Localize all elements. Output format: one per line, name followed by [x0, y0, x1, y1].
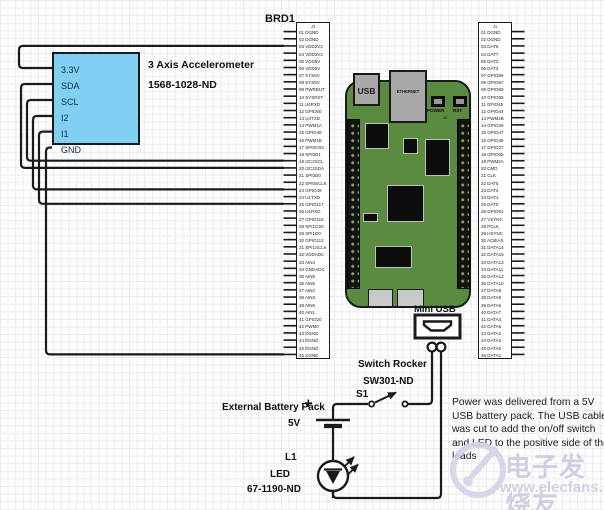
pin-label: 10 GPIO68 [481, 94, 504, 101]
pin-label: 16 PWM1B [299, 137, 322, 144]
pin-label: 41 GPIO20 [299, 316, 322, 323]
pin-label: 37 DATA8 [481, 287, 501, 294]
accelerometer-part-number: 1568-1028-ND [148, 79, 217, 91]
pin-label: 04 VDD3V3 [299, 51, 323, 58]
pin-label: 32 DATA15 [481, 251, 504, 258]
pin-label: 42 DATA5 [481, 323, 501, 330]
pin-label: 40 AIN1 [299, 309, 315, 316]
pin-label: 15 GPIO48 [299, 129, 322, 136]
accelerometer-pin-label: GND [61, 144, 81, 156]
pin-label: 36 DATA10 [481, 280, 504, 287]
pin-label: 25 DAT0 [481, 201, 498, 208]
board-silkscreen-ref: J2 [443, 115, 447, 120]
battery-voltage: 5V [288, 418, 300, 429]
pin-label: 29 SPI1D0 [299, 230, 321, 237]
pin-label: 34 DATA11 [481, 266, 503, 273]
pin-label: 17 SPI0CS0 [299, 144, 324, 151]
pin-label: 45 DGND [299, 345, 319, 352]
pin-label: 28 SPI1CS0 [299, 223, 324, 230]
pin-label: 18 GPIO65 [481, 151, 504, 158]
battery-symbol [316, 420, 350, 426]
led-symbol [318, 457, 358, 491]
pin-label: 39 AIN0 [299, 302, 315, 309]
led-part-number: 67-1190-ND [247, 484, 301, 495]
pin-label: 13 U4TXD [299, 115, 320, 122]
board-chip [365, 123, 389, 149]
pin-label: 08 GPIO67 [481, 79, 504, 86]
pin-label: 04 DAT7 [481, 51, 498, 58]
board-ref-label: BRD1 [265, 13, 295, 25]
pin-label: 03 VDD3V3 [299, 43, 323, 50]
pin-label: 42 PWM0 [299, 323, 319, 330]
pin-label: 21 CLK [481, 172, 496, 179]
accelerometer-pin-label: SDA [61, 80, 80, 92]
pin-label: 35 DATA12 [481, 273, 504, 280]
pin-label: 31 SPI1SCLK [299, 244, 327, 251]
board-chip [375, 246, 412, 268]
pin-label: 43 DGND [299, 330, 319, 337]
pin-label: 20 I2C2SDA [299, 165, 324, 172]
pin-label: 38 DATA9 [481, 294, 501, 301]
reset-button-label: RST [453, 108, 462, 113]
switch-ref: S1 [356, 389, 368, 400]
pin-label: 26 U1RXD [299, 208, 321, 215]
power-button-label: POWER [427, 108, 444, 113]
pin-label: 27 VSYNC [481, 216, 503, 223]
pin-label: 02 DGND [481, 36, 501, 43]
pin-label: 30 ACBIAS [481, 237, 504, 244]
pin-label: 07 GPIO66 [481, 72, 504, 79]
accelerometer-pin-label: SCL [61, 96, 79, 108]
mini-usb-label: Mini USB [414, 304, 456, 315]
pin-label: 15 GPIO47 [481, 129, 504, 136]
pin-label: 12 GPIO44 [481, 108, 504, 115]
pin-label: 10 SYSRST [299, 94, 323, 101]
pin-label: 32 VDDADC [299, 251, 324, 258]
pin-label: 38 AIN3 [299, 294, 315, 301]
pin-label: 29 HSYNC [481, 230, 503, 237]
mini-usb-connector [415, 315, 460, 351]
pin-label: 31 DATA14 [481, 244, 504, 251]
board-chip [425, 139, 450, 176]
pin-label: 06 VDD5V [299, 65, 320, 72]
pin-label: 09 PWRBUT [299, 86, 325, 93]
pin-label: 11 GPIO45 [481, 101, 503, 108]
switch-part-number: SW301-ND [363, 376, 414, 387]
pin-label: 08 SYS5V [299, 79, 320, 86]
pin-label: 41 DATA4 [481, 316, 501, 323]
switch-symbol [369, 393, 408, 407]
pin-label: 46 DGND [299, 352, 319, 359]
pin-label: 16 GPIO46 [481, 137, 504, 144]
pin-label: 06 DAT3 [481, 65, 498, 72]
board-left-pin-strip [347, 119, 360, 289]
pin-label: 23 DAT4 [481, 187, 498, 194]
battery-plus-sign: + [304, 395, 313, 412]
pin-label: 27 GPIO115 [299, 216, 324, 223]
board-chip [363, 213, 378, 222]
led-label: LED [270, 469, 290, 480]
pin-label: 13 PWM2B [481, 115, 504, 122]
pin-label: 28 PCLK [481, 223, 499, 230]
left-pin-header: J3 01 DGND02 DGND03 VDD3V304 VDD3V305 VD… [296, 22, 330, 359]
pin-label: 44 DGND [299, 337, 319, 344]
pin-label: 05 VDD5V [299, 58, 320, 65]
right-pin-header: J1 01 DGND02 DGND03 DAT604 DAT705 DAT206… [478, 22, 512, 359]
pin-label: 24 U1TXD [299, 194, 320, 201]
pin-label: 01 DGND [481, 29, 501, 36]
ethernet-port: ETHERNET [389, 70, 427, 123]
accelerometer-pin-label: I1 [61, 128, 69, 140]
pin-label: 40 DATA7 [481, 309, 501, 316]
pin-label: 12 GPIO60 [299, 108, 322, 115]
pin-label: 33 AIN4 [299, 259, 315, 266]
pin-label: 20 CMD [481, 165, 498, 172]
power-button-cap [434, 99, 442, 104]
board-right-pin-strip [457, 119, 470, 289]
pin-label: 05 DAT2 [481, 58, 498, 65]
pin-label: 24 DAT1 [481, 194, 498, 201]
pin-label: 39 DATA6 [481, 302, 501, 309]
accelerometer-title: 3 Axis Accelerometer [148, 59, 254, 71]
pin-label: 07 SYS5V [299, 72, 320, 79]
pin-label: 21 SPI0D0 [299, 172, 321, 179]
pin-label: 30 GPIO112 [299, 237, 324, 244]
accelerometer-pin-label: 3.3V [61, 64, 80, 76]
pin-label: 26 GPIO61 [481, 208, 504, 215]
pin-label: 22 DAT5 [481, 180, 498, 187]
reset-button [453, 96, 467, 107]
wire-gnd [46, 148, 284, 355]
pin-label: 19 PWM2A [481, 158, 504, 165]
accelerometer-pin-label: I2 [61, 112, 69, 124]
pin-label: 33 DATA13 [481, 259, 504, 266]
power-circuit-wires [333, 352, 441, 498]
pin-label: 36 AIN5 [299, 280, 315, 287]
power-button [431, 96, 445, 107]
pin-label: 43 DATA2 [481, 330, 501, 337]
pin-label: 37 AIN2 [299, 287, 315, 294]
pin-label: 03 DAT6 [481, 43, 498, 50]
right-header-ticks [512, 32, 525, 355]
reset-button-cap [456, 99, 464, 104]
led-ref: L1 [285, 452, 297, 463]
pin-label: 35 AIN6 [299, 273, 315, 280]
pin-label: 45 DATA0 [481, 345, 501, 352]
pin-label: 14 GPIO26 [481, 122, 504, 129]
pin-label: 34 GNDADC [299, 266, 325, 273]
board-processor-chip [387, 185, 424, 222]
pin-label: 01 DGND [299, 29, 319, 36]
pin-label: 17 GPIO27 [481, 144, 504, 151]
pin-label: 22 SPI0SCLK [299, 180, 327, 187]
pin-label: 18 SPI0D1 [299, 151, 321, 158]
accelerometer-module: 3.3VSDASCLI2I1GND [52, 52, 140, 145]
pin-label: 44 DATA3 [481, 337, 501, 344]
pin-label: 14 PWM1A [299, 122, 322, 129]
pin-label: 02 DGND [299, 36, 319, 43]
pin-label: 23 GPIO49 [299, 187, 322, 194]
board-chip [403, 138, 418, 154]
schematic-canvas: 3.3VSDASCLI2I1GND 3 Axis Accelerometer 1… [0, 0, 604, 510]
switch-label: Switch Rocker [358, 359, 427, 370]
left-header-ticks [284, 32, 297, 355]
watermark-url: www.elecfans.com [500, 479, 604, 496]
pin-label: 11 U4RXD [299, 101, 320, 108]
pin-label: 19 I2C2SCL [299, 158, 324, 165]
board-pad [368, 289, 393, 307]
pin-label: 09 GPIO69 [481, 86, 504, 93]
usb-port: USB [353, 73, 380, 106]
pin-label: 25 GPIO117 [299, 201, 324, 208]
pin-label: 46 DATA1 [481, 352, 501, 359]
